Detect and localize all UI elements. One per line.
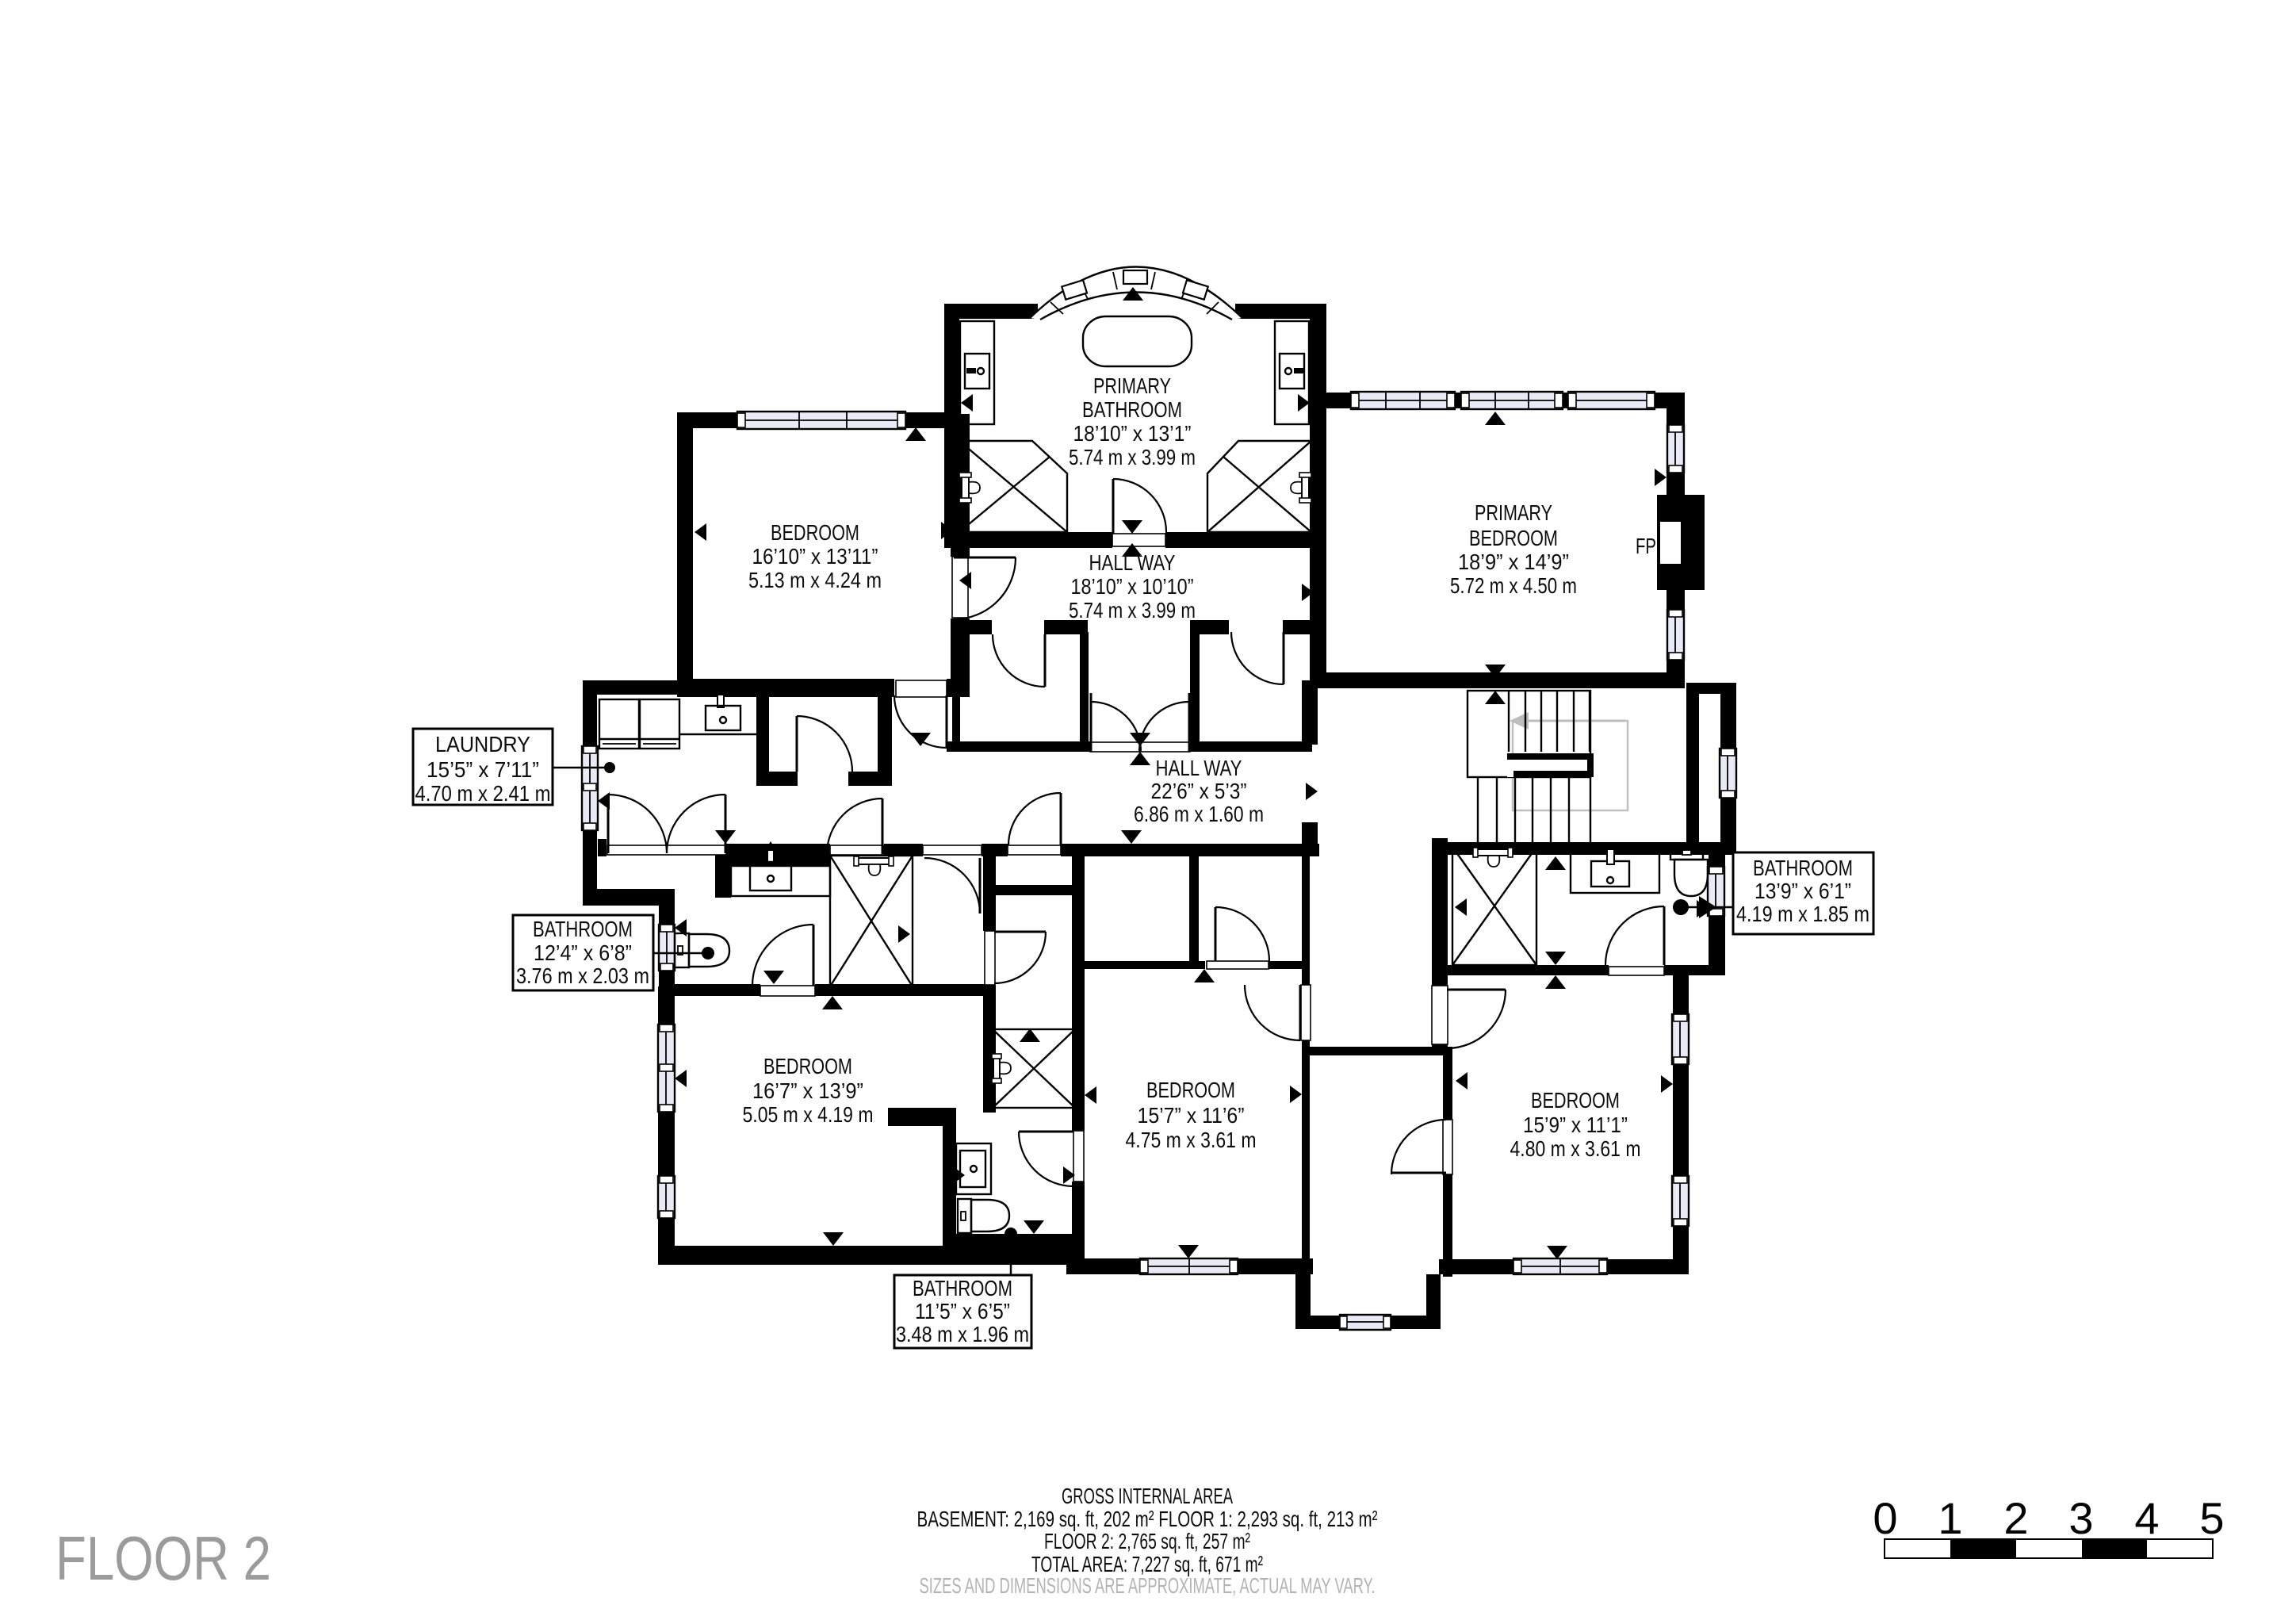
svg-text:BEDROOM: BEDROOM [1531,1088,1620,1113]
svg-text:PRIMARY: PRIMARY [1475,500,1552,525]
svg-text:12’4” x 6’8”: 12’4” x 6’8” [534,940,632,965]
svg-text:BASEMENT: 2,169 sq. ft, 202 m²: BASEMENT: 2,169 sq. ft, 202 m² FLOOR 1: … [917,1507,1378,1531]
svg-text:16’7” x 13’9”: 16’7” x 13’9” [752,1078,863,1103]
svg-text:3.48 m x 1.96 m: 3.48 m x 1.96 m [896,1322,1029,1346]
svg-text:BATHROOM: BATHROOM [1082,397,1182,422]
svg-text:FLOOR 2: 2,765 sq. ft, 257 m²: FLOOR 2: 2,765 sq. ft, 257 m² [1044,1529,1250,1553]
svg-text:2: 2 [2003,1493,2028,1543]
svg-text:SIZES AND DIMENSIONS ARE APPRO: SIZES AND DIMENSIONS ARE APPROXIMATE, AC… [920,1573,1376,1598]
svg-text:15’5” x 7’11”: 15’5” x 7’11” [427,757,539,782]
svg-text:BATHROOM: BATHROOM [533,917,633,941]
svg-text:GROSS INTERNAL AREA: GROSS INTERNAL AREA [1062,1484,1233,1508]
svg-text:BEDROOM: BEDROOM [771,520,859,545]
svg-text:16’10” x 13’11”: 16’10” x 13’11” [752,544,878,569]
svg-text:FP: FP [1636,534,1656,558]
svg-text:5.74 m x 3.99 m: 5.74 m x 3.99 m [1069,445,1196,469]
svg-text:4: 4 [2134,1493,2159,1543]
svg-text:15’7” x 11’6”: 15’7” x 11’6” [1138,1103,1245,1128]
svg-text:PRIMARY: PRIMARY [1093,373,1171,398]
svg-text:5.72 m x 4.50 m: 5.72 m x 4.50 m [1450,573,1577,598]
svg-text:4.70 m x 2.41 m: 4.70 m x 2.41 m [415,781,551,806]
svg-text:BATHROOM: BATHROOM [913,1276,1012,1300]
svg-text:5.13 m x 4.24 m: 5.13 m x 4.24 m [748,568,882,592]
svg-text:BEDROOM: BEDROOM [1469,526,1558,550]
svg-text:4.19 m x 1.85 m: 4.19 m x 1.85 m [1736,902,1869,926]
svg-text:5: 5 [2199,1493,2224,1543]
svg-text:BEDROOM: BEDROOM [1146,1078,1235,1102]
svg-text:4.75 m x 3.61 m: 4.75 m x 3.61 m [1126,1128,1257,1152]
svg-text:5.74 m x 3.99 m: 5.74 m x 3.99 m [1069,598,1196,622]
svg-text:HALL WAY: HALL WAY [1156,756,1242,780]
svg-text:18’9” x 14’9”: 18’9” x 14’9” [1458,550,1569,574]
svg-text:LAUNDRY: LAUNDRY [435,732,530,756]
svg-text:6.86 m x 1.60 m: 6.86 m x 1.60 m [1134,802,1264,826]
svg-text:22’6” x 5’3”: 22’6” x 5’3” [1151,779,1247,803]
svg-text:4.80 m x 3.61 m: 4.80 m x 3.61 m [1510,1136,1641,1161]
svg-text:0: 0 [1873,1493,1897,1543]
svg-text:1: 1 [1938,1493,1962,1543]
svg-text:15’9” x 11’1”: 15’9” x 11’1” [1523,1113,1628,1137]
svg-text:11’5” x 6’5”: 11’5” x 6’5” [915,1299,1010,1323]
svg-text:3.76 m x 2.03 m: 3.76 m x 2.03 m [516,963,649,988]
svg-text:FLOOR 2: FLOOR 2 [55,1523,271,1593]
svg-text:BATHROOM: BATHROOM [1753,856,1853,880]
svg-text:3: 3 [2068,1493,2093,1543]
svg-text:18’10” x 10’10”: 18’10” x 10’10” [1071,574,1194,599]
svg-text:BEDROOM: BEDROOM [763,1054,852,1078]
svg-text:13’9” x 6’1”: 13’9” x 6’1” [1755,879,1851,903]
svg-text:18’10” x 13’1”: 18’10” x 13’1” [1073,421,1192,446]
svg-text:5.05 m x 4.19 m: 5.05 m x 4.19 m [743,1102,874,1127]
